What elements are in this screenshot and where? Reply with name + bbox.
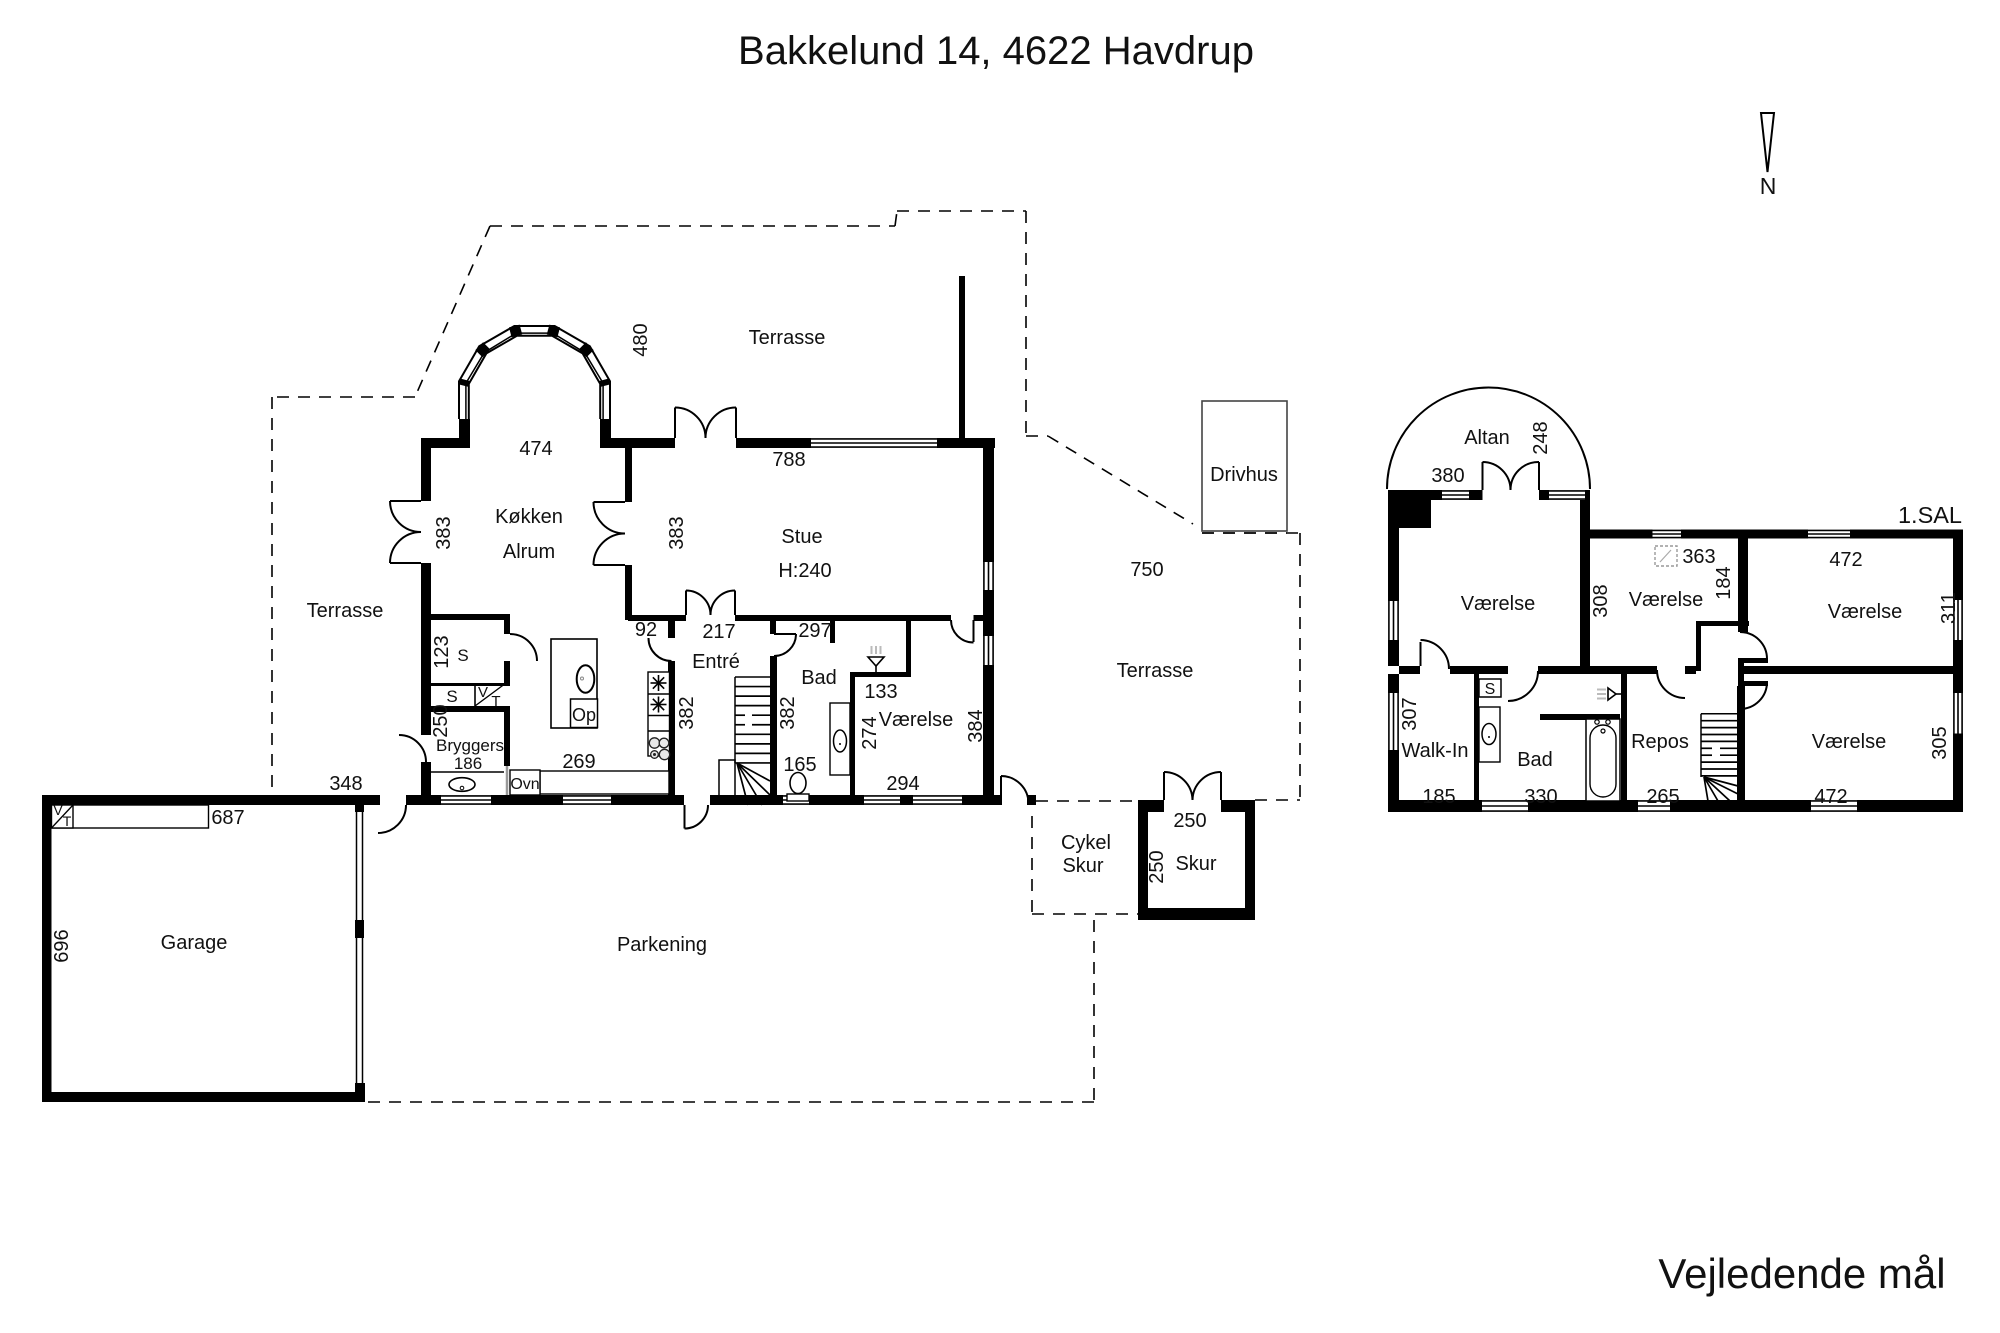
- svg-text:250: 250: [430, 704, 452, 737]
- svg-text:123: 123: [431, 635, 453, 668]
- svg-text:T: T: [63, 813, 72, 829]
- svg-text:308: 308: [1590, 584, 1612, 617]
- svg-text:Vejledende mål: Vejledende mål: [1658, 1250, 1945, 1297]
- svg-text:Cykel: Cykel: [1061, 832, 1111, 854]
- svg-text:92: 92: [635, 619, 657, 641]
- svg-text:Terrasse: Terrasse: [1117, 660, 1194, 682]
- svg-text:Ovn: Ovn: [510, 776, 539, 793]
- svg-text:382: 382: [777, 696, 799, 729]
- svg-text:384: 384: [965, 709, 987, 742]
- svg-text:S: S: [446, 687, 457, 706]
- svg-text:217: 217: [702, 621, 735, 643]
- svg-text:Værelse: Værelse: [879, 709, 953, 731]
- svg-text:Terrasse: Terrasse: [307, 600, 384, 622]
- svg-text:696: 696: [51, 929, 73, 962]
- svg-text:474: 474: [519, 438, 552, 460]
- svg-text:Værelse: Værelse: [1461, 593, 1535, 615]
- svg-text:687: 687: [211, 807, 244, 829]
- svg-text:Alrum: Alrum: [503, 541, 555, 563]
- svg-text:S: S: [1485, 681, 1496, 698]
- svg-text:472: 472: [1814, 786, 1847, 808]
- svg-text:330: 330: [1524, 786, 1557, 808]
- svg-text:Værelse: Værelse: [1812, 731, 1886, 753]
- svg-text:H:240: H:240: [778, 560, 831, 582]
- svg-text:250: 250: [1173, 810, 1206, 832]
- svg-text:Altan: Altan: [1464, 427, 1510, 449]
- svg-text:480: 480: [630, 323, 652, 356]
- svg-text:269: 269: [562, 751, 595, 773]
- svg-text:307: 307: [1399, 697, 1421, 730]
- svg-text:248: 248: [1530, 421, 1552, 454]
- svg-text:Garage: Garage: [161, 932, 228, 954]
- svg-text:133: 133: [864, 681, 897, 703]
- svg-text:Bad: Bad: [801, 667, 837, 689]
- svg-text:T: T: [491, 693, 500, 710]
- svg-text:184: 184: [1713, 566, 1735, 599]
- svg-text:382: 382: [676, 696, 698, 729]
- svg-text:348: 348: [329, 773, 362, 795]
- svg-text:788: 788: [772, 449, 805, 471]
- svg-text:Bakkelund 14, 4622 Havdrup: Bakkelund 14, 4622 Havdrup: [738, 29, 1254, 73]
- svg-text:Terrasse: Terrasse: [749, 327, 826, 349]
- svg-text:363: 363: [1682, 546, 1715, 568]
- svg-text:Op: Op: [572, 705, 596, 725]
- svg-text:294: 294: [886, 773, 919, 795]
- svg-text:Parkening: Parkening: [617, 934, 707, 956]
- svg-text:Entré: Entré: [692, 651, 740, 673]
- svg-text:380: 380: [1431, 465, 1464, 487]
- svg-text:S: S: [457, 646, 468, 665]
- svg-text:Bryggers: Bryggers: [436, 736, 504, 755]
- svg-text:297: 297: [798, 620, 831, 642]
- svg-text:750: 750: [1130, 559, 1163, 581]
- svg-text:472: 472: [1829, 549, 1862, 571]
- svg-text:Drivhus: Drivhus: [1210, 464, 1278, 486]
- svg-text:Stue: Stue: [781, 526, 822, 548]
- svg-text:274: 274: [859, 716, 881, 749]
- svg-text:Repos: Repos: [1631, 731, 1689, 753]
- svg-text:165: 165: [783, 754, 816, 776]
- svg-text:265: 265: [1646, 786, 1679, 808]
- svg-text:Bad: Bad: [1517, 749, 1553, 771]
- svg-text:305: 305: [1929, 726, 1951, 759]
- svg-text:250: 250: [1146, 850, 1168, 883]
- svg-text:383: 383: [666, 516, 688, 549]
- svg-text:Værelse: Værelse: [1828, 601, 1902, 623]
- svg-text:N: N: [1760, 173, 1777, 199]
- svg-text:V: V: [478, 684, 488, 701]
- svg-text:1.SAL: 1.SAL: [1898, 502, 1962, 528]
- svg-text:Walk-In: Walk-In: [1401, 740, 1468, 762]
- svg-text:Skur: Skur: [1062, 855, 1103, 877]
- svg-text:383: 383: [433, 516, 455, 549]
- svg-text:Køkken: Køkken: [495, 506, 563, 528]
- svg-text:186: 186: [454, 754, 482, 773]
- svg-text:311: 311: [1938, 592, 1960, 624]
- svg-text:185: 185: [1422, 786, 1455, 808]
- svg-text:Skur: Skur: [1175, 853, 1216, 875]
- svg-text:Værelse: Værelse: [1629, 589, 1703, 611]
